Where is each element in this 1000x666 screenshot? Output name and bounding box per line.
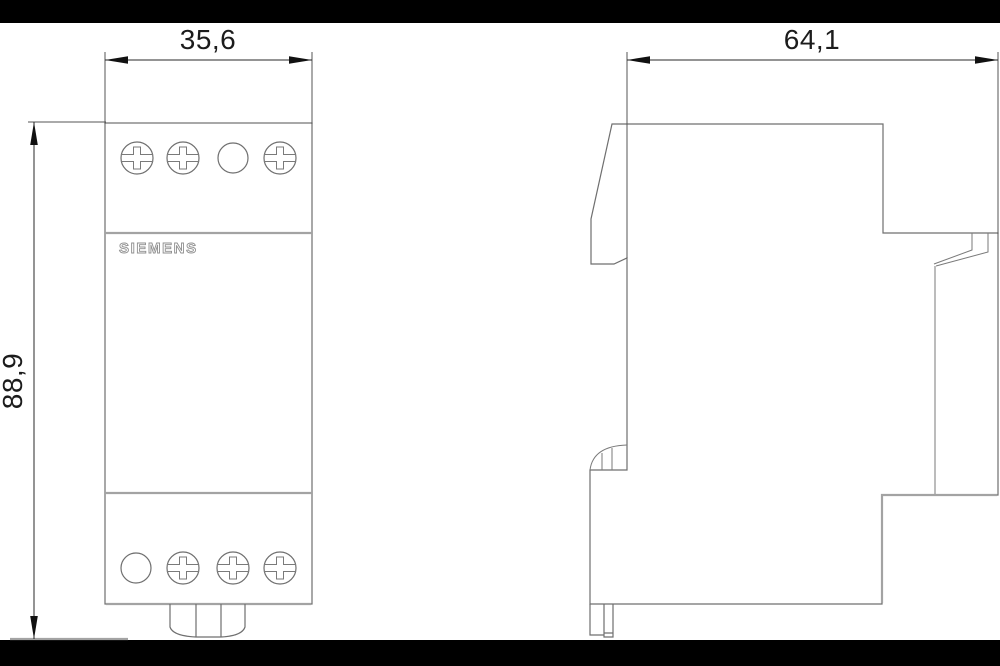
brand-logo-text: SIEMENS xyxy=(119,240,198,257)
width-dimension: 35,6 xyxy=(105,24,312,124)
depth-dimension: 64,1 xyxy=(627,24,998,258)
arrow-left-icon xyxy=(105,56,128,64)
dimension-drawing: SIEMENS xyxy=(0,0,1000,666)
din-clip-arc xyxy=(590,445,627,470)
arrow-left-icon xyxy=(627,56,650,64)
arrow-right-icon xyxy=(975,56,998,64)
arrow-down-icon xyxy=(30,616,38,639)
arrow-right-icon xyxy=(289,56,312,64)
width-dimension-label: 35,6 xyxy=(180,24,237,55)
technical-drawing-canvas: SIEMENS xyxy=(0,0,1000,666)
side-bottom-step-line xyxy=(882,495,997,603)
side-foot-outline xyxy=(590,604,613,637)
height-dimension: 88,9 xyxy=(0,122,128,639)
depth-dimension-label: 64,1 xyxy=(784,24,841,55)
side-view xyxy=(590,124,998,637)
front-top-terminal-row xyxy=(121,142,296,174)
front-body-outline xyxy=(105,123,312,604)
hole-icon xyxy=(121,553,151,583)
screw-icon xyxy=(264,552,296,584)
front-bottom-terminal-row xyxy=(121,552,296,584)
side-body-outline xyxy=(590,124,998,604)
screw-icon xyxy=(121,142,153,174)
hole-icon xyxy=(218,143,248,173)
height-dimension-label: 88,9 xyxy=(0,353,28,410)
screw-icon xyxy=(167,552,199,584)
front-foot-outline xyxy=(170,604,245,637)
screw-icon xyxy=(217,552,249,584)
rear-flap-detail xyxy=(934,233,988,494)
front-view: SIEMENS xyxy=(105,123,312,637)
screw-icon xyxy=(167,142,199,174)
screw-icon xyxy=(264,142,296,174)
arrow-up-icon xyxy=(30,122,38,145)
